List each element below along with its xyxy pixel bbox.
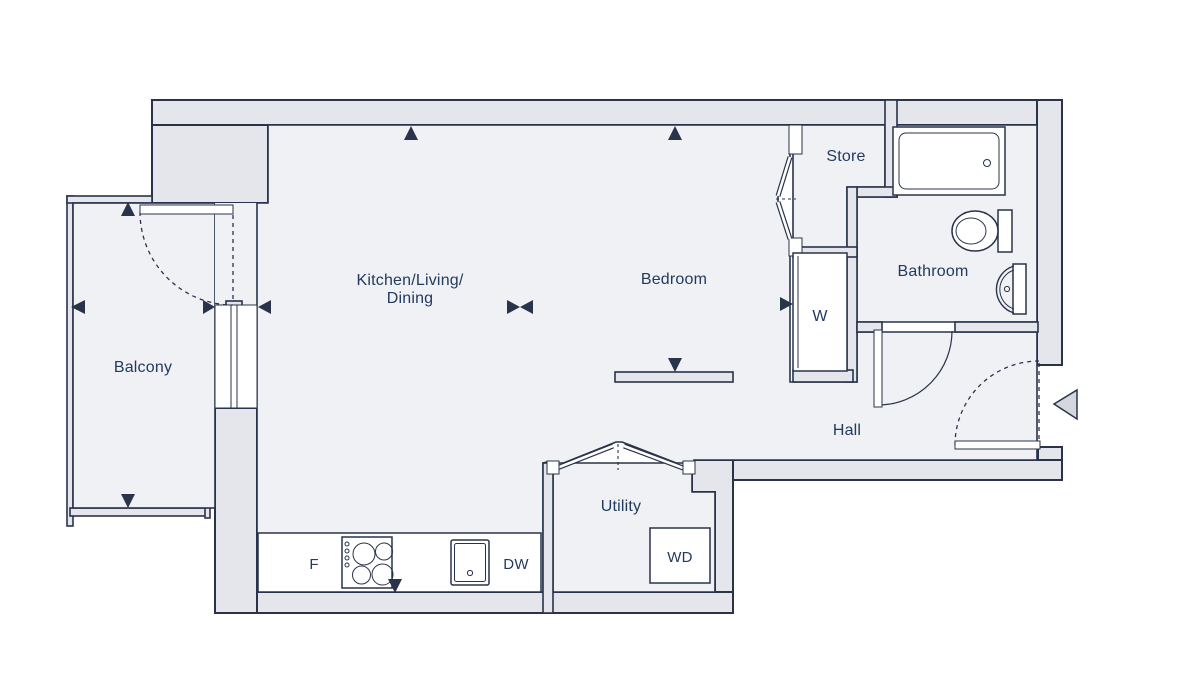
balcony-rail-left <box>67 196 73 526</box>
fixture-label-fridge: F <box>309 556 318 573</box>
utility-door-stub-right <box>683 461 695 474</box>
entrance-arrow-icon <box>1054 390 1077 419</box>
room-label-store: Store <box>826 148 865 165</box>
store-door-stub-top <box>789 125 802 154</box>
room-label-kitchen-living-line2: Dining <box>387 290 434 307</box>
balcony-rail-bottom <box>70 508 208 516</box>
hob-body <box>342 537 392 588</box>
wall-hall-bottom <box>687 460 1062 480</box>
fixture-label-dishwasher: DW <box>503 556 529 573</box>
wall-bottom <box>215 592 733 613</box>
balcony-rail-top <box>67 196 152 203</box>
toilet-icon <box>952 210 1012 252</box>
floor-plan-svg: Kitchen/Living/ Dining Bedroom Balcony S… <box>0 0 1178 700</box>
bedroom-divider-bar <box>615 372 733 382</box>
basin-bracket <box>1013 264 1026 314</box>
room-label-utility: Utility <box>601 498 642 515</box>
room-balcony-floor <box>73 203 215 508</box>
fixture-label-washer-dryer: WD <box>667 549 692 566</box>
bathtub-outer <box>893 127 1005 195</box>
room-label-kitchen-living-line1: Kitchen/Living/ <box>356 272 463 289</box>
window-frame <box>215 305 257 408</box>
toilet-bowl <box>952 211 998 251</box>
room-label-hall: Hall <box>833 422 861 439</box>
bathroom-door-leaf <box>874 330 882 407</box>
toilet-cistern <box>998 210 1012 252</box>
balcony-door-leaf <box>140 205 233 214</box>
wall-bathroom-left <box>847 187 857 382</box>
room-label-balcony: Balcony <box>114 359 172 376</box>
wall-wardrobe-bottom-bar <box>793 370 853 382</box>
room-label-bathroom: Bathroom <box>898 263 969 280</box>
wall-right <box>1037 100 1062 365</box>
wall-utility-left <box>543 463 553 613</box>
floor-plan: Kitchen/Living/ Dining Bedroom Balcony S… <box>0 0 1178 700</box>
sink-unit-outer <box>451 540 489 585</box>
fixture-label-wardrobe: W <box>812 308 828 325</box>
balcony-door-threshold <box>215 203 257 306</box>
wall-top <box>152 100 1062 125</box>
utility-door-stub-left <box>547 461 559 474</box>
entrance-door-leaf <box>955 441 1040 449</box>
room-label-bedroom: Bedroom <box>641 271 707 288</box>
kitchen-balcony-window <box>215 305 257 408</box>
wall-bathroom-bottom-right <box>955 322 1038 332</box>
hob-icon <box>342 537 393 588</box>
bathtub-icon <box>893 127 1005 195</box>
wall-kitchen-left <box>215 408 257 613</box>
wall-bath-nook-bottom <box>857 187 897 197</box>
sink-unit-icon <box>451 540 489 585</box>
